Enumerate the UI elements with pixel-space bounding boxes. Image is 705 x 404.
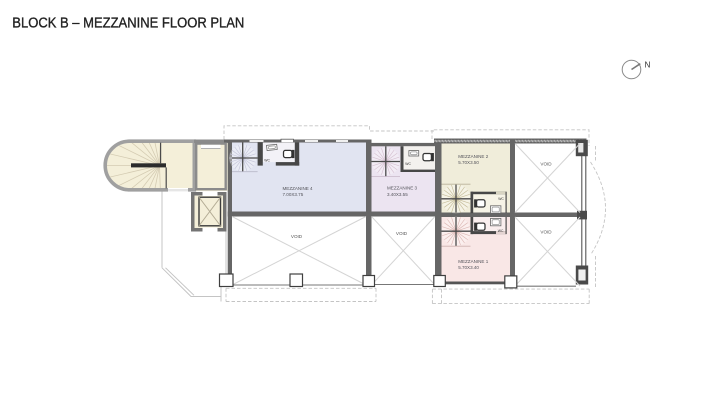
svg-text:WC: WC — [498, 197, 504, 201]
svg-text:MEZZANINE 2: MEZZANINE 2 — [458, 154, 489, 159]
svg-text:WC: WC — [264, 159, 270, 163]
svg-text:3.40X3.55: 3.40X3.55 — [387, 192, 408, 197]
svg-text:7.00X3.75: 7.00X3.75 — [283, 192, 304, 197]
svg-text:VOID: VOID — [396, 231, 408, 236]
svg-text:WC: WC — [498, 229, 504, 233]
svg-text:VOID: VOID — [540, 162, 552, 167]
svg-text:MEZZANINE 4: MEZZANINE 4 — [283, 186, 314, 191]
svg-text:VOID: VOID — [291, 234, 303, 239]
svg-text:MEZZANINE 3: MEZZANINE 3 — [387, 186, 418, 191]
svg-text:5.70X3.40: 5.70X3.40 — [458, 265, 479, 270]
svg-text:VOID: VOID — [540, 230, 552, 235]
svg-text:BLOCK B – MEZZANINE FLOOR PLAN: BLOCK B – MEZZANINE FLOOR PLAN — [12, 13, 244, 30]
svg-text:5.70X3.50: 5.70X3.50 — [458, 160, 479, 165]
svg-text:N: N — [645, 60, 651, 69]
svg-text:MEZZANINE 1: MEZZANINE 1 — [458, 259, 489, 264]
svg-text:WC: WC — [405, 162, 411, 166]
